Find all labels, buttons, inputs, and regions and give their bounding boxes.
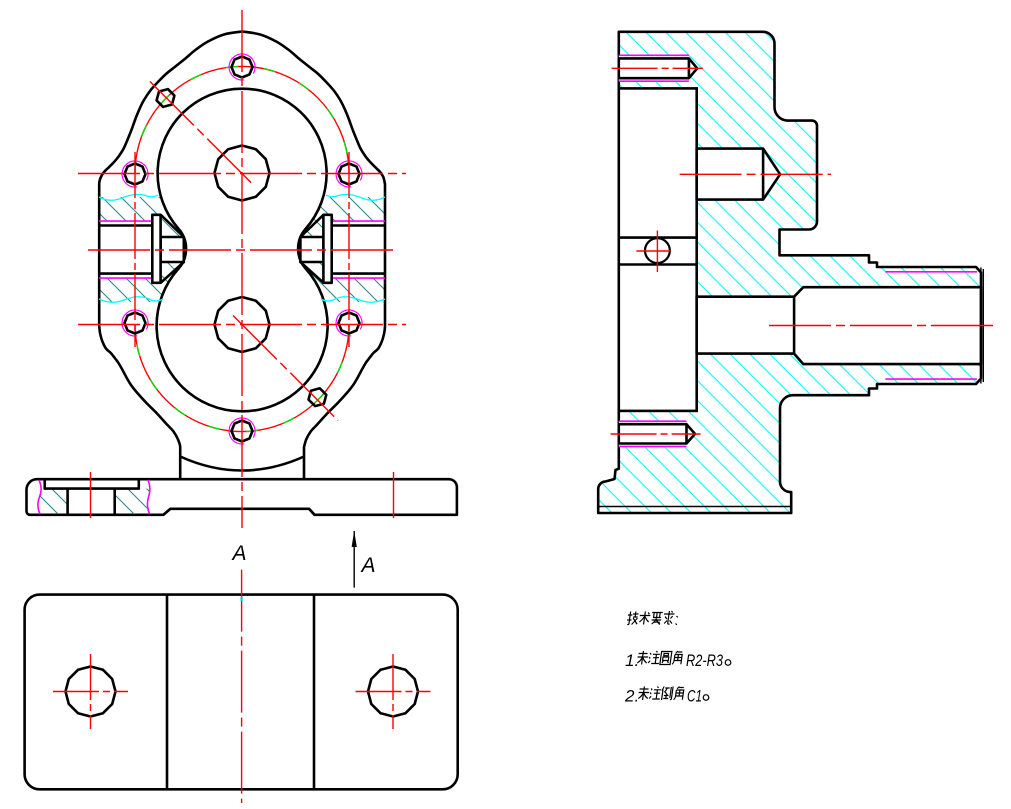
svg-text:R2-R3: R2-R3 — [686, 651, 723, 670]
svg-text:A: A — [231, 542, 247, 565]
svg-text:C1: C1 — [687, 687, 702, 706]
svg-text:1.: 1. — [625, 651, 639, 670]
svg-text:2.: 2. — [624, 687, 639, 706]
svg-text:A: A — [360, 554, 376, 577]
